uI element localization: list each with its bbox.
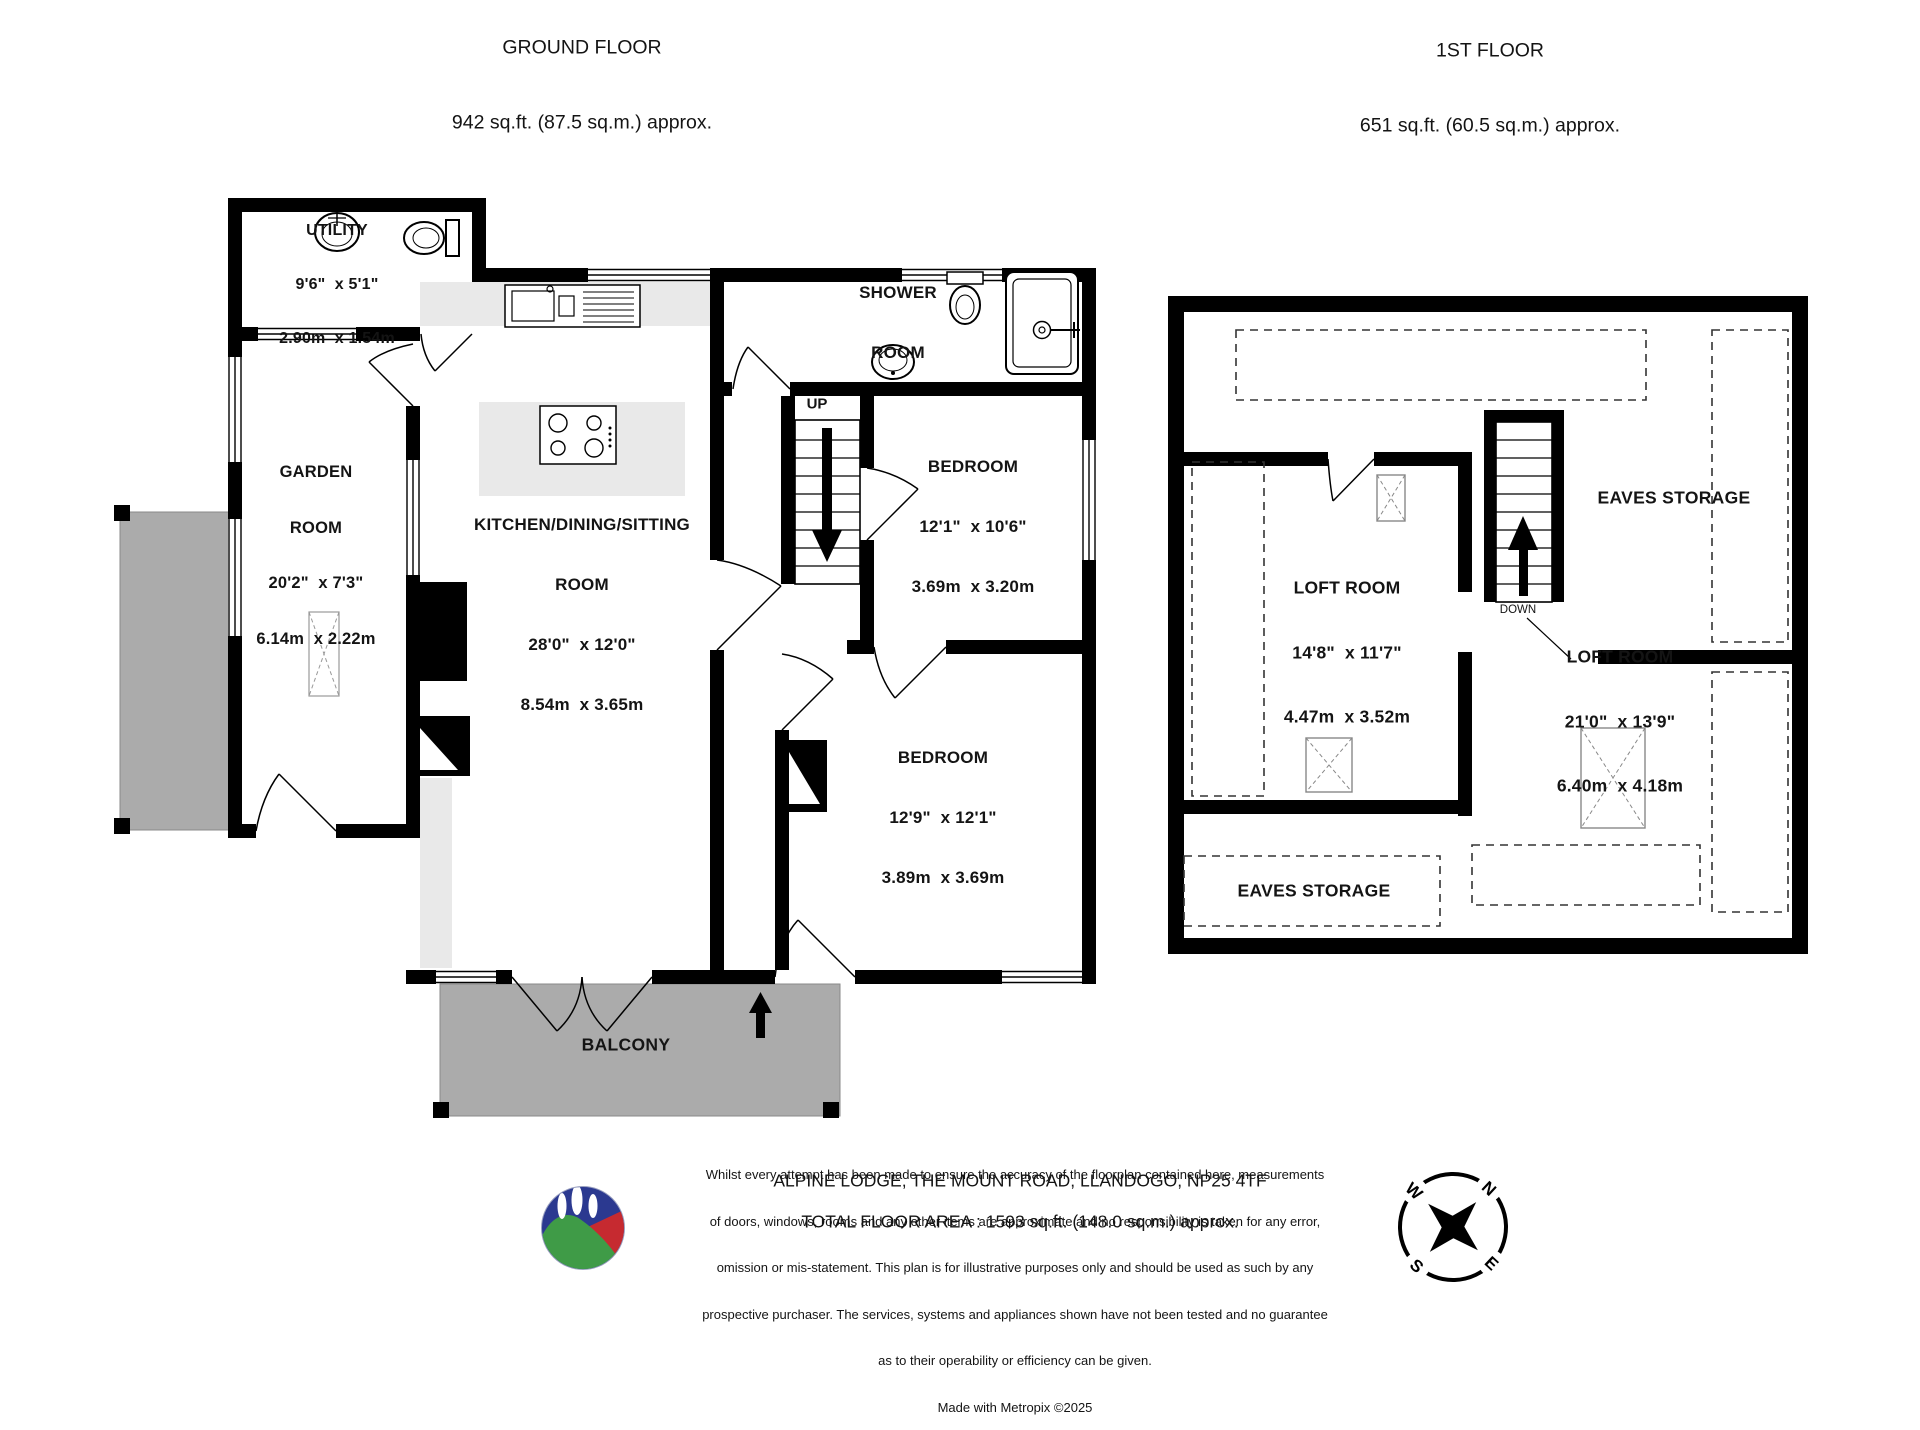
room-label-utility: UTILITY 9'6" x 5'1" 2.90m x 1.54m	[279, 186, 395, 366]
room-dims-imperial: 28'0" x 12'0"	[474, 635, 690, 655]
metropix-logo	[541, 1185, 628, 1270]
room-name: LOFT ROOM	[1557, 647, 1683, 669]
disclaimer-line: as to their operability or efficiency ca…	[702, 1353, 1328, 1369]
room-dims-imperial: 9'6" x 5'1"	[279, 276, 395, 294]
room-name: BEDROOM	[882, 748, 1005, 768]
stairs-up-label: UP	[807, 396, 828, 413]
room-dims-imperial: 20'2" x 7'3"	[256, 574, 375, 593]
room-name: LOFT ROOM	[1284, 578, 1410, 600]
disclaimer-line: of doors, windows, rooms and any other i…	[702, 1213, 1328, 1229]
compass-icon: N E S W	[1360, 1134, 1547, 1321]
room-name: UTILITY	[279, 222, 395, 240]
room-label-bedroom-1: BEDROOM 12'1" x 10'6" 3.69m x 3.20m	[912, 417, 1035, 617]
disclaimer-text: Whilst every attempt has been made to en…	[702, 1136, 1328, 1430]
floor-name: GROUND FLOOR	[452, 36, 712, 61]
room-dims-imperial: 12'9" x 12'1"	[882, 808, 1005, 828]
utility-toilet-icon	[404, 220, 459, 256]
patio-area	[114, 505, 232, 834]
first-floor-plan	[1168, 296, 1808, 954]
room-label-loft-room-2: LOFT ROOM 21'0" x 13'9" 6.40m x 4.18m	[1557, 604, 1683, 819]
room-name: ROOM	[859, 343, 937, 363]
room-label-eaves-storage-right: EAVES STORAGE	[1597, 488, 1750, 509]
room-name: SHOWER	[859, 283, 937, 303]
room-name: ROOM	[256, 518, 375, 537]
room-dims-imperial: 12'1" x 10'6"	[912, 517, 1035, 537]
stairs-down-icon	[1496, 422, 1552, 602]
stairs-up-icon	[795, 420, 860, 584]
hob-icon	[540, 406, 616, 464]
room-dims-metric: 6.40m x 4.18m	[1557, 776, 1683, 798]
stairs-down-label: DOWN	[1500, 604, 1536, 616]
floorplan-page: { "ground_floor": { "title": "GROUND FLO…	[0, 0, 1920, 1397]
kitchen-sink-icon	[505, 285, 640, 327]
metropix-credit: Made with Metropix ©2025	[702, 1399, 1328, 1415]
room-label-bedroom-2: BEDROOM 12'9" x 12'1" 3.89m x 3.69m	[882, 708, 1005, 908]
shower-icon	[1006, 272, 1080, 374]
room-dims-imperial: 21'0" x 13'9"	[1557, 711, 1683, 733]
floor-area: 651 sq.ft. (60.5 sq.m.) approx.	[1360, 114, 1620, 139]
room-dims-metric: 8.54m x 3.65m	[474, 695, 690, 715]
room-name: BEDROOM	[912, 457, 1035, 477]
room-dims-metric: 4.47m x 3.52m	[1284, 707, 1410, 729]
room-label-eaves-storage-bottom: EAVES STORAGE	[1237, 881, 1390, 902]
room-name: GARDEN	[256, 463, 375, 482]
floor-area: 942 sq.ft. (87.5 sq.m.) approx.	[452, 111, 712, 136]
floor-name: 1ST FLOOR	[1360, 39, 1620, 64]
toilet-icon	[947, 272, 983, 324]
first-floor-title: 1ST FLOOR 651 sq.ft. (60.5 sq.m.) approx…	[1360, 0, 1620, 164]
room-label-shower-room: SHOWER ROOM	[859, 243, 937, 383]
disclaimer-line: prospective purchaser. The services, sys…	[702, 1306, 1328, 1322]
ground-floor-title: GROUND FLOOR 942 sq.ft. (87.5 sq.m.) app…	[452, 0, 712, 161]
room-label-kitchen: KITCHEN/DINING/SITTING ROOM 28'0" x 12'0…	[474, 475, 690, 735]
room-name: ROOM	[474, 575, 690, 595]
room-dims-metric: 3.69m x 3.20m	[912, 577, 1035, 597]
disclaimer-line: Whilst every attempt has been made to en…	[702, 1167, 1328, 1183]
room-name: KITCHEN/DINING/SITTING	[474, 515, 690, 535]
room-label-balcony: BALCONY	[582, 1035, 671, 1056]
room-dims-metric: 2.90m x 1.54m	[279, 330, 395, 348]
room-dims-imperial: 14'8" x 11'7"	[1284, 642, 1410, 664]
room-dims-metric: 3.89m x 3.69m	[882, 868, 1005, 888]
room-label-loft-room-1: LOFT ROOM 14'8" x 11'7" 4.47m x 3.52m	[1284, 535, 1410, 750]
disclaimer-line: omission or mis-statement. This plan is …	[702, 1260, 1328, 1276]
room-label-garden-room: GARDEN ROOM 20'2" x 7'3" 6.14m x 2.22m	[256, 426, 375, 667]
room-dims-metric: 6.14m x 2.22m	[256, 629, 375, 648]
